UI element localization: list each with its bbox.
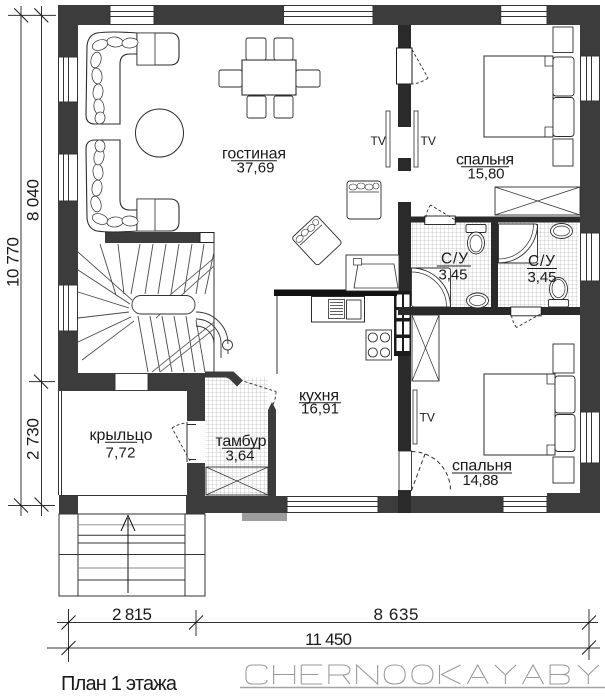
svg-text:37,69: 37,69 [237, 160, 275, 177]
svg-text:8 635: 8 635 [374, 605, 419, 624]
svg-text:8 040: 8 040 [24, 179, 43, 221]
svg-text:TV: TV [371, 134, 386, 148]
svg-text:2 730: 2 730 [24, 418, 43, 460]
svg-text:7,72: 7,72 [106, 445, 136, 462]
svg-text:14,88: 14,88 [463, 472, 499, 489]
svg-text:С/У: С/У [441, 251, 468, 268]
svg-text:План 1 этажа: План 1 этажа [61, 673, 178, 695]
svg-text:10 770: 10 770 [4, 237, 23, 287]
svg-text:TV: TV [421, 134, 436, 148]
svg-text:3,64: 3,64 [226, 448, 255, 465]
svg-text:3,45: 3,45 [528, 269, 557, 286]
svg-text:15,80: 15,80 [468, 166, 505, 183]
svg-text:крыльцо: крыльцо [90, 427, 153, 444]
svg-text:С/У: С/У [528, 253, 555, 270]
svg-text:11 450: 11 450 [305, 630, 352, 649]
svg-text:2 815: 2 815 [112, 605, 152, 624]
svg-text:TV: TV [420, 411, 435, 425]
svg-text:3,45: 3,45 [439, 267, 468, 284]
svg-text:16,91: 16,91 [301, 401, 339, 418]
